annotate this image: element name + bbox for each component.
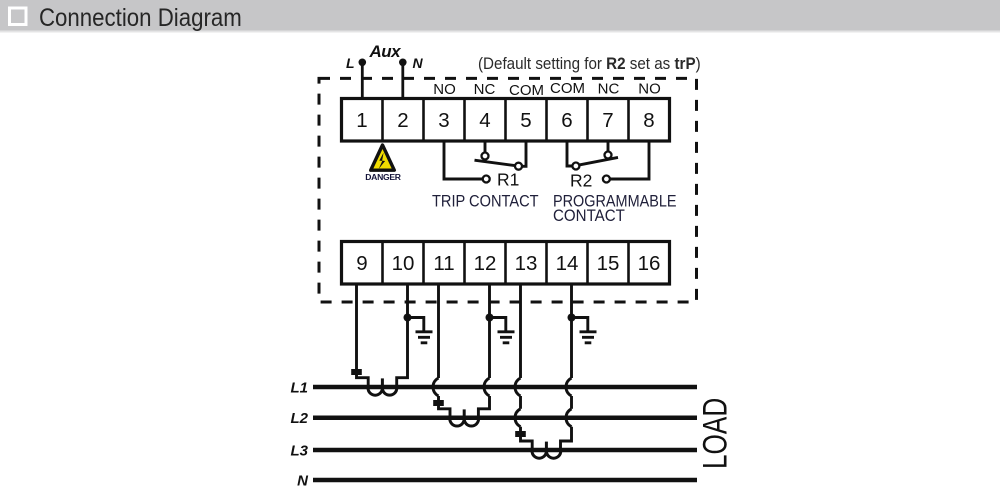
- svg-text:L1: L1: [290, 379, 308, 396]
- svg-text:8: 8: [643, 109, 654, 132]
- svg-text:11: 11: [433, 252, 454, 275]
- svg-text:L3: L3: [290, 442, 308, 459]
- svg-text:14: 14: [556, 252, 579, 275]
- svg-text:NO: NO: [433, 81, 456, 98]
- svg-text:9: 9: [356, 252, 367, 275]
- svg-text:R2: R2: [570, 171, 592, 191]
- svg-text:7: 7: [602, 109, 613, 132]
- svg-text:COM: COM: [550, 80, 585, 97]
- svg-text:LOAD: LOAD: [697, 398, 734, 469]
- svg-text:6: 6: [561, 109, 572, 132]
- svg-text:NC: NC: [474, 81, 496, 98]
- svg-text:N: N: [297, 472, 309, 489]
- svg-text:NC: NC: [598, 81, 620, 98]
- svg-text:Aux: Aux: [369, 42, 403, 61]
- svg-text:DANGER: DANGER: [365, 172, 402, 182]
- svg-text:L: L: [346, 55, 355, 71]
- svg-text:R1: R1: [497, 170, 519, 190]
- svg-text:5: 5: [520, 109, 531, 132]
- svg-text:15: 15: [597, 252, 620, 275]
- svg-text:16: 16: [638, 252, 661, 275]
- svg-text:10: 10: [392, 252, 415, 275]
- svg-text:NO: NO: [638, 81, 661, 98]
- svg-text:3: 3: [438, 109, 449, 132]
- svg-text:4: 4: [479, 109, 490, 132]
- svg-text:CONTACT: CONTACT: [553, 207, 625, 225]
- svg-text:2: 2: [397, 109, 408, 132]
- svg-text:Connection Diagram: Connection Diagram: [39, 5, 242, 32]
- svg-text:(Default setting for R2 set as: (Default setting for R2 set as trP): [478, 55, 701, 73]
- svg-text:TRIP CONTACT: TRIP CONTACT: [432, 193, 539, 211]
- svg-text:1: 1: [356, 109, 367, 132]
- svg-text:COM: COM: [509, 82, 544, 99]
- svg-text:12: 12: [474, 252, 497, 275]
- svg-text:N: N: [413, 55, 424, 71]
- svg-text:L2: L2: [290, 410, 308, 427]
- svg-text:13: 13: [515, 252, 538, 275]
